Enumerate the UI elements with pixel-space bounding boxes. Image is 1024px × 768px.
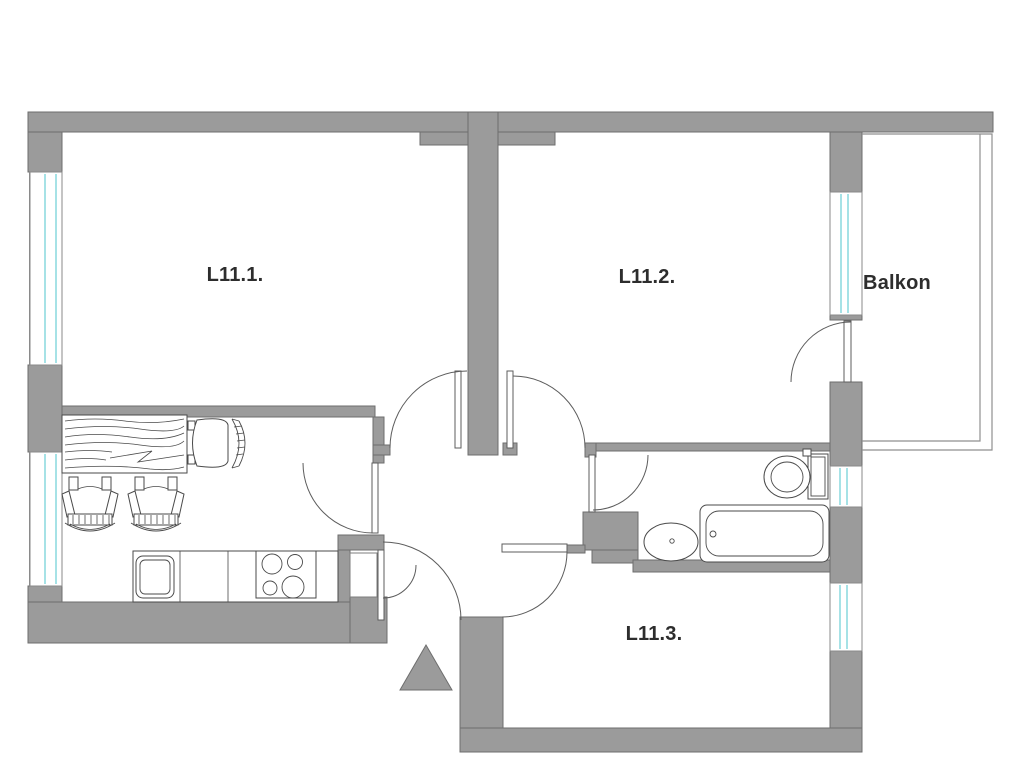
toilet-flush-button bbox=[803, 449, 811, 456]
chair-seat-edge bbox=[144, 487, 168, 490]
door-swing-arc bbox=[303, 463, 373, 533]
wall-left-mid bbox=[28, 365, 62, 452]
door-balcony bbox=[791, 321, 851, 382]
kitchen-counter bbox=[133, 551, 338, 602]
window-bathroom bbox=[830, 466, 862, 507]
wall-bath-top bbox=[585, 443, 830, 451]
floor-plan: L11.1. L11.2. L11.3. Balkon bbox=[0, 0, 1024, 768]
wall-room3-top-stub bbox=[567, 545, 585, 553]
door-swing-arc bbox=[502, 552, 567, 617]
wall-niche-left bbox=[338, 550, 350, 602]
wall-right-d bbox=[830, 507, 862, 583]
wall-right-c bbox=[830, 382, 862, 466]
door-leaf bbox=[844, 321, 851, 382]
chair-post bbox=[102, 477, 111, 490]
chair-back-bar bbox=[134, 514, 178, 525]
wall-top bbox=[28, 112, 993, 132]
door-leaf bbox=[455, 371, 461, 448]
wall-left-upper bbox=[28, 132, 62, 172]
chair-post bbox=[69, 477, 78, 490]
door-leaf bbox=[378, 550, 384, 620]
chair-armrest bbox=[171, 491, 184, 517]
chair-armrest bbox=[105, 491, 118, 517]
chair-post bbox=[168, 477, 177, 490]
wall-bath-block-b bbox=[592, 550, 638, 563]
wall-bath-block-a bbox=[583, 512, 638, 550]
window-room3 bbox=[830, 583, 862, 651]
window-frame bbox=[830, 192, 862, 315]
entrance-triangle-marker bbox=[400, 645, 452, 690]
chair-back-slats bbox=[232, 419, 245, 468]
door-room3 bbox=[502, 544, 567, 617]
washbasin-bowl bbox=[644, 523, 698, 561]
door-entrance bbox=[378, 542, 461, 620]
toilet bbox=[764, 449, 828, 499]
storage-niche bbox=[350, 553, 377, 597]
door-leaf bbox=[589, 455, 595, 512]
wall-right-a bbox=[830, 132, 862, 192]
window-room1-left bbox=[30, 172, 63, 365]
wall-hall-stub-left bbox=[373, 445, 390, 455]
door-swing-arc bbox=[383, 542, 461, 620]
wall-room3-bottom bbox=[460, 728, 862, 752]
window-room2-balcony bbox=[830, 192, 862, 315]
door-leaf bbox=[502, 544, 567, 552]
stove bbox=[256, 551, 316, 598]
chair-seat bbox=[193, 419, 229, 467]
table-top bbox=[62, 415, 187, 473]
door-swing-arc bbox=[513, 376, 585, 448]
window-kitchen-left bbox=[30, 452, 63, 586]
dining-table bbox=[62, 415, 187, 473]
wall-kitchen-right bbox=[373, 417, 384, 463]
room-label-balkon: Balkon bbox=[863, 272, 931, 294]
door-leaf bbox=[507, 371, 513, 448]
chair-back-bar bbox=[68, 514, 112, 525]
bathtub-outer bbox=[700, 505, 829, 562]
door-leaf bbox=[372, 463, 378, 533]
chair-seat-edge bbox=[78, 487, 102, 490]
chair-post bbox=[135, 477, 144, 490]
room-label-l11-2: L11.2. bbox=[619, 266, 676, 288]
kitchen-sink-unit bbox=[136, 556, 174, 598]
room-label-l11-1: L11.1. bbox=[207, 264, 264, 286]
floor-plan-drawing: L11.1. L11.2. L11.3. Balkon bbox=[0, 0, 1024, 768]
chair-armrest bbox=[62, 491, 75, 517]
bathtub bbox=[700, 505, 829, 562]
door-bathroom bbox=[589, 455, 648, 512]
niche-door-swing-arc bbox=[383, 565, 416, 598]
door-room1 bbox=[390, 371, 467, 448]
chair-side bbox=[188, 419, 245, 468]
wall-kitchen-step bbox=[338, 535, 384, 550]
wall-room-divider bbox=[468, 112, 498, 455]
door-room2 bbox=[507, 371, 585, 448]
chair-bottom bbox=[62, 477, 118, 531]
chair-back bbox=[239, 421, 245, 466]
door-kitchen bbox=[303, 463, 378, 533]
door-swing-arc bbox=[791, 322, 851, 382]
chair-armrest bbox=[128, 491, 141, 517]
room-label-l11-3: L11.3. bbox=[626, 623, 683, 645]
wall-right-b bbox=[830, 315, 862, 320]
chair-bottom bbox=[128, 477, 184, 531]
wall-bottom-kitchen bbox=[28, 602, 350, 643]
door-swing-arc bbox=[593, 455, 648, 510]
washbasin bbox=[644, 523, 698, 561]
